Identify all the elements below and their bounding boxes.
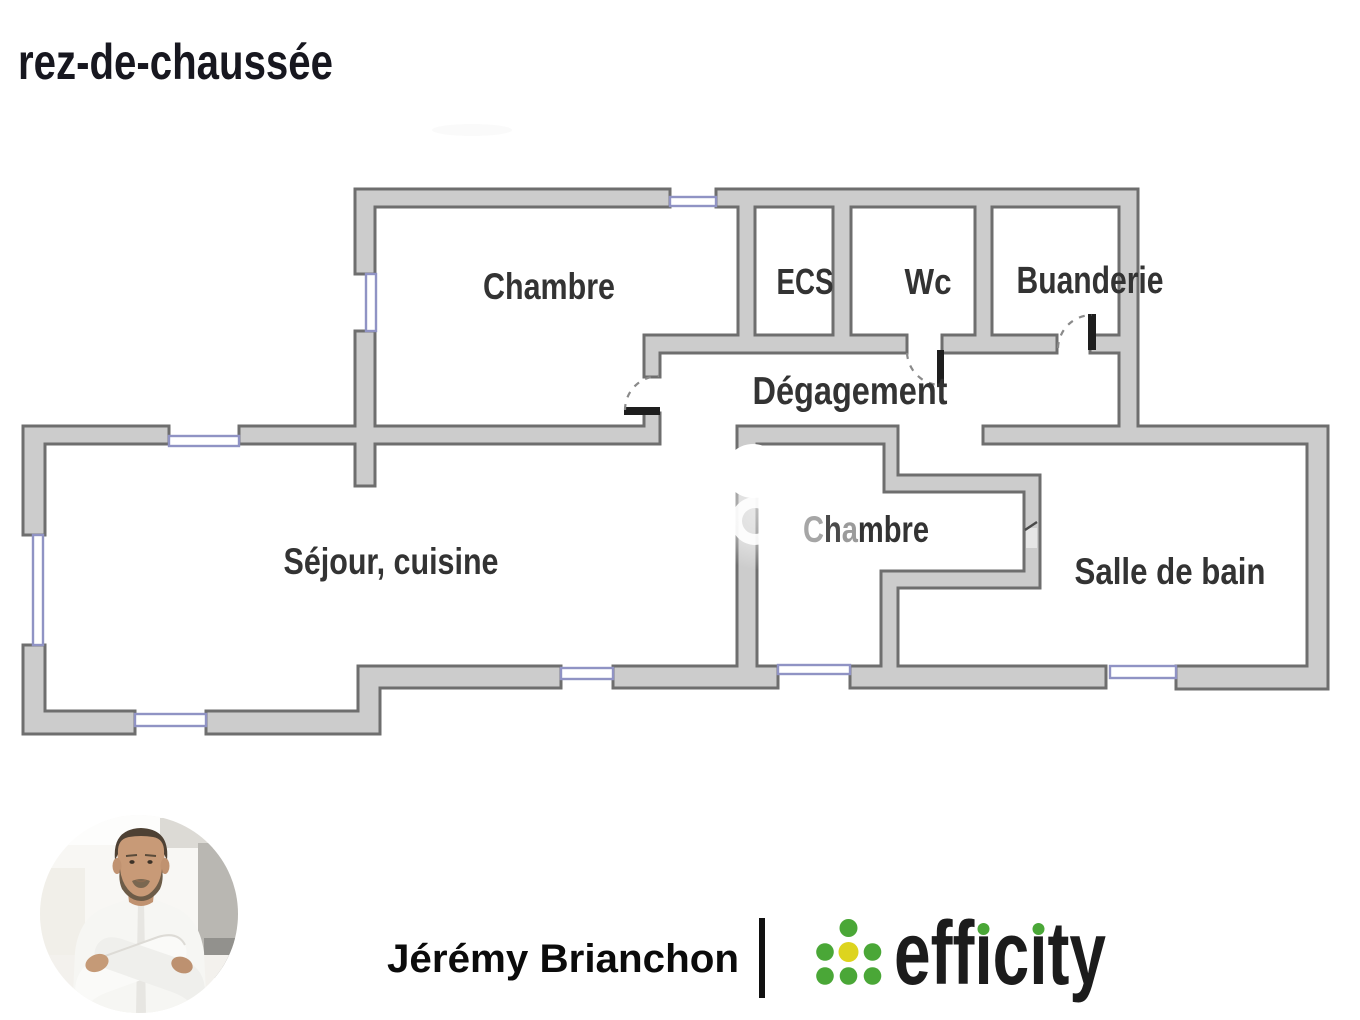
svg-text:ECS: ECS xyxy=(777,261,834,302)
svg-text:rez-de-chaussée: rez-de-chaussée xyxy=(18,34,333,90)
svg-text:Jérémy Brianchon: Jérémy Brianchon xyxy=(387,937,739,981)
svg-text:Wc: Wc xyxy=(905,261,952,302)
svg-text:effıcıty: effıcıty xyxy=(894,904,1106,1004)
svg-text:Dégagement: Dégagement xyxy=(753,370,948,413)
svg-text:Chambre: Chambre xyxy=(803,509,929,550)
svg-text:Salle de bain: Salle de bain xyxy=(1075,551,1266,592)
svg-text:Séjour, cuisine: Séjour, cuisine xyxy=(284,541,499,582)
svg-text:Chambre: Chambre xyxy=(483,266,615,307)
svg-text:Buanderie: Buanderie xyxy=(1017,260,1164,302)
